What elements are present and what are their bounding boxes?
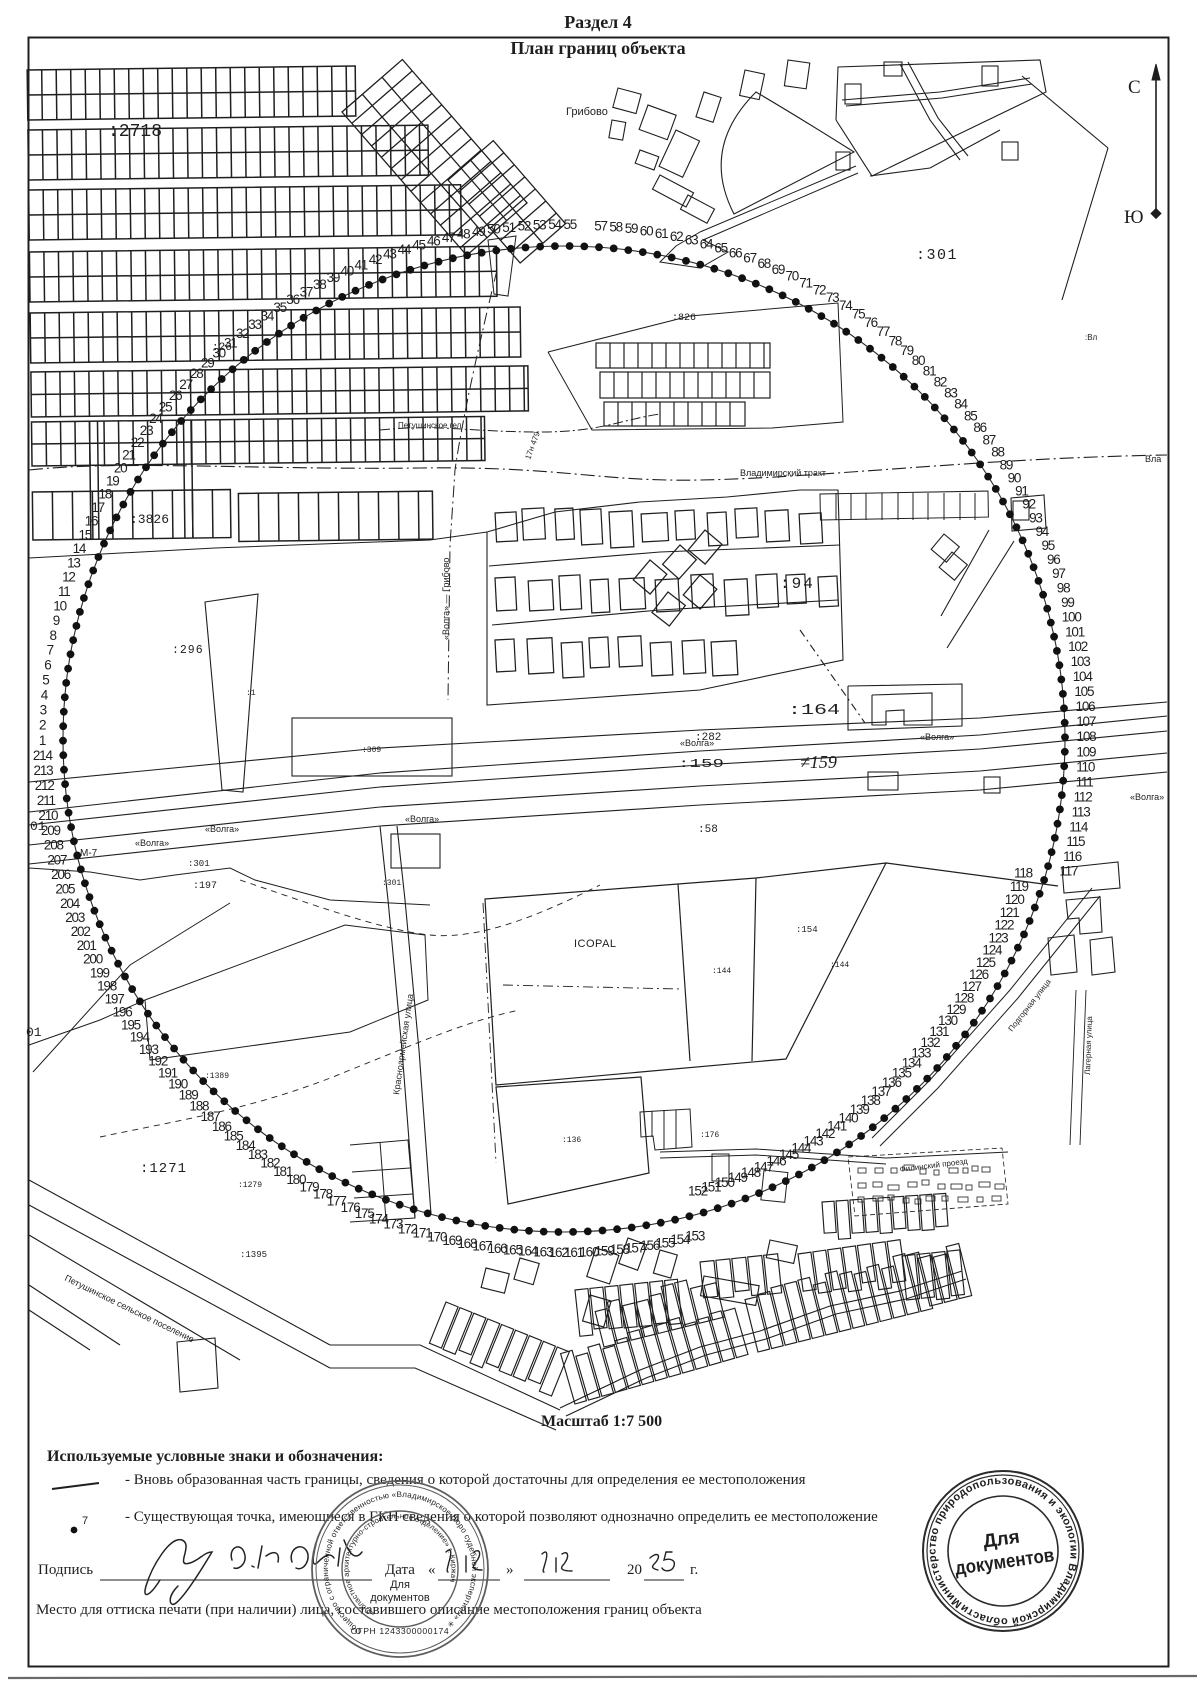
svg-text:6: 6: [44, 658, 51, 673]
svg-text:35: 35: [273, 300, 286, 315]
svg-text:110: 110: [1076, 759, 1095, 774]
svg-text:214: 214: [33, 748, 54, 763]
svg-text:С: С: [1128, 77, 1141, 98]
svg-text::301: :301: [188, 859, 210, 869]
svg-text:100: 100: [1062, 610, 1082, 625]
svg-text:52: 52: [518, 219, 531, 234]
svg-text:67: 67: [743, 251, 756, 266]
svg-text:- Существующая точка, имеющиес: - Существующая точка, имеющиеся в ГКН св…: [125, 1509, 878, 1525]
svg-text:Ю: Ю: [1124, 207, 1144, 228]
svg-text:«: «: [428, 1562, 436, 1578]
svg-text:39: 39: [327, 270, 340, 285]
svg-text:59: 59: [625, 221, 638, 236]
svg-text:«Волга»: «Волга»: [920, 732, 954, 742]
svg-text:58: 58: [609, 220, 622, 235]
svg-text:64: 64: [700, 236, 714, 251]
svg-text:53: 53: [533, 218, 546, 233]
svg-text:197: 197: [105, 992, 125, 1007]
svg-text:≠159: ≠159: [800, 752, 837, 772]
svg-text:57: 57: [594, 218, 607, 233]
svg-text::1389: :1389: [205, 1072, 229, 1081]
svg-text:19: 19: [106, 473, 119, 488]
svg-text::136: :136: [562, 1136, 581, 1145]
svg-text:108: 108: [1077, 729, 1097, 744]
svg-text:«Волга»: «Волга»: [1130, 792, 1164, 802]
svg-text:7: 7: [82, 1515, 88, 1527]
svg-text:60: 60: [640, 223, 653, 238]
svg-text:Вла: Вла: [1145, 454, 1161, 464]
svg-text::154: :154: [796, 925, 818, 935]
svg-text:М-7: М-7: [80, 848, 98, 859]
svg-text:204: 204: [60, 896, 81, 911]
svg-text::94: :94: [780, 575, 815, 593]
svg-text:75: 75: [852, 306, 865, 321]
svg-text:98: 98: [1057, 581, 1070, 596]
svg-text:2: 2: [39, 718, 46, 733]
svg-text::159: :159: [678, 757, 724, 771]
svg-text:103: 103: [1071, 654, 1091, 669]
svg-text:ICOPAL: ICOPAL: [574, 938, 617, 950]
svg-text:96: 96: [1047, 552, 1060, 567]
svg-text:115: 115: [1066, 834, 1085, 849]
svg-text:61: 61: [655, 226, 668, 241]
svg-text:10: 10: [53, 599, 66, 614]
svg-text:109: 109: [1076, 744, 1096, 759]
svg-text:211: 211: [37, 793, 56, 808]
svg-text:41: 41: [354, 258, 367, 273]
svg-text:Для: Для: [390, 1579, 410, 1591]
svg-text:106: 106: [1076, 699, 1096, 714]
svg-text:55: 55: [563, 217, 576, 232]
svg-text:213: 213: [34, 763, 54, 778]
svg-text:114: 114: [1069, 819, 1089, 834]
svg-text:69: 69: [772, 262, 785, 277]
svg-text::296: :296: [172, 644, 204, 657]
svg-text::144: :144: [712, 967, 731, 976]
svg-text:99: 99: [1061, 595, 1074, 610]
svg-text:«Волга»: «Волга»: [205, 824, 239, 834]
svg-text:14: 14: [73, 541, 87, 556]
svg-text:203: 203: [65, 910, 85, 925]
svg-text:13: 13: [67, 555, 80, 570]
svg-text:113: 113: [1072, 804, 1091, 819]
svg-text:47: 47: [442, 230, 455, 245]
svg-text:Владимирский тракт: Владимирский тракт: [740, 468, 826, 478]
svg-text:«Волга» — Грибово: «Волга» — Грибово: [441, 558, 451, 640]
svg-text:63: 63: [685, 233, 698, 248]
svg-text:102: 102: [1068, 639, 1088, 654]
svg-text::1279: :1279: [238, 1181, 262, 1190]
svg-text:51: 51: [502, 220, 515, 235]
svg-text:7: 7: [47, 643, 54, 658]
svg-text:20: 20: [627, 1562, 642, 1578]
svg-text:45: 45: [412, 237, 425, 252]
svg-text:200: 200: [83, 952, 103, 967]
svg-text::2718: :2718: [108, 122, 162, 142]
svg-text::282: :282: [695, 732, 721, 744]
svg-text:18: 18: [98, 487, 111, 502]
svg-text:Подпись: Подпись: [38, 1562, 93, 1578]
svg-text:8: 8: [49, 628, 56, 643]
svg-text:101: 101: [1065, 624, 1085, 639]
svg-text::164: :164: [788, 702, 840, 719]
svg-text:54: 54: [548, 217, 562, 232]
svg-text::3826: :3826: [130, 512, 169, 527]
svg-text:112: 112: [1074, 789, 1093, 804]
svg-text:207: 207: [47, 852, 67, 867]
svg-text::176: :176: [700, 1131, 719, 1140]
svg-text:г.: г.: [690, 1562, 698, 1578]
svg-text:Петушинское гел.: Петушинское гел.: [398, 421, 464, 430]
svg-text::301: :301: [916, 247, 958, 264]
svg-text:33: 33: [248, 317, 261, 332]
svg-text:206: 206: [51, 867, 71, 882]
svg-text:- Вновь образованная часть гра: - Вновь образованная часть границы, свед…: [125, 1472, 806, 1488]
svg-text:48: 48: [457, 227, 470, 242]
svg-text:196: 196: [113, 1005, 133, 1020]
svg-text:73: 73: [826, 290, 839, 305]
svg-text:46: 46: [427, 233, 440, 248]
svg-text:70: 70: [785, 269, 798, 284]
svg-text:116: 116: [1063, 849, 1082, 864]
svg-text:1: 1: [39, 733, 46, 748]
svg-text::309: :309: [362, 746, 381, 755]
svg-text:37: 37: [300, 284, 313, 299]
svg-text:94: 94: [1035, 524, 1049, 539]
svg-text:66: 66: [729, 245, 742, 260]
svg-text:62: 62: [670, 229, 683, 244]
svg-text:17: 17: [91, 500, 104, 515]
svg-text::301: :301: [382, 879, 401, 888]
svg-text:199: 199: [90, 965, 110, 980]
svg-text::1: :1: [246, 689, 256, 698]
svg-text:49: 49: [472, 224, 485, 239]
svg-text:152: 152: [688, 1183, 708, 1198]
svg-text::826: :826: [672, 313, 696, 324]
svg-text:План границ объекта: План границ объекта: [510, 38, 685, 58]
svg-text:11: 11: [58, 584, 70, 599]
svg-text:111: 111: [1076, 774, 1094, 789]
svg-text:«Волга»: «Волга»: [135, 838, 169, 848]
svg-text:50: 50: [487, 222, 500, 237]
svg-text:105: 105: [1074, 684, 1094, 699]
svg-text:16: 16: [85, 514, 98, 529]
svg-text:36: 36: [286, 292, 299, 307]
svg-text:Грибово: Грибово: [566, 106, 608, 118]
svg-text:208: 208: [44, 838, 64, 853]
svg-text:»: »: [506, 1562, 514, 1578]
svg-text:107: 107: [1076, 714, 1096, 729]
svg-text:65: 65: [714, 241, 727, 256]
svg-text:«Волга»: «Волга»: [405, 814, 439, 824]
svg-text:95: 95: [1041, 538, 1054, 553]
svg-text:72: 72: [813, 283, 826, 298]
svg-text:202: 202: [71, 924, 91, 939]
svg-text:212: 212: [35, 778, 55, 793]
svg-text:документов: документов: [370, 1592, 430, 1604]
svg-text:43: 43: [383, 247, 396, 262]
svg-text:117: 117: [1059, 864, 1078, 879]
svg-text:71: 71: [799, 275, 812, 290]
svg-text:68: 68: [757, 256, 770, 271]
svg-text:Используемые условные знаки и: Используемые условные знаки и обозначени…: [47, 1448, 383, 1465]
svg-text:104: 104: [1073, 669, 1094, 684]
svg-text:40: 40: [340, 264, 353, 279]
svg-text:38: 38: [313, 277, 326, 292]
svg-text:201: 201: [77, 938, 97, 953]
svg-text::197: :197: [193, 881, 217, 892]
svg-text::Вл: :Вл: [1085, 333, 1098, 342]
svg-text:97: 97: [1052, 566, 1065, 581]
svg-text:3: 3: [40, 703, 47, 718]
svg-text:209: 209: [41, 823, 61, 838]
svg-text:210: 210: [38, 808, 58, 823]
svg-text:205: 205: [55, 882, 75, 897]
svg-text:9: 9: [53, 613, 60, 628]
svg-text::1395: :1395: [240, 1250, 267, 1260]
svg-text::1271: :1271: [140, 1161, 187, 1177]
svg-text:42: 42: [369, 252, 382, 267]
svg-text:Масштаб 1:7 500: Масштаб 1:7 500: [541, 1413, 662, 1430]
svg-text:01: 01: [26, 1025, 42, 1040]
svg-text:44: 44: [398, 242, 412, 257]
svg-text:Дата: Дата: [385, 1562, 415, 1578]
svg-text:5: 5: [42, 673, 49, 688]
svg-text:ОГРН 1243300000174: ОГРН 1243300000174: [351, 1626, 450, 1636]
svg-text::144: :144: [830, 961, 849, 970]
svg-text:Раздел 4: Раздел 4: [564, 12, 632, 32]
svg-text:198: 198: [97, 979, 117, 994]
svg-text:12: 12: [62, 570, 75, 585]
svg-text::58: :58: [698, 824, 718, 836]
svg-text:15: 15: [78, 527, 91, 542]
